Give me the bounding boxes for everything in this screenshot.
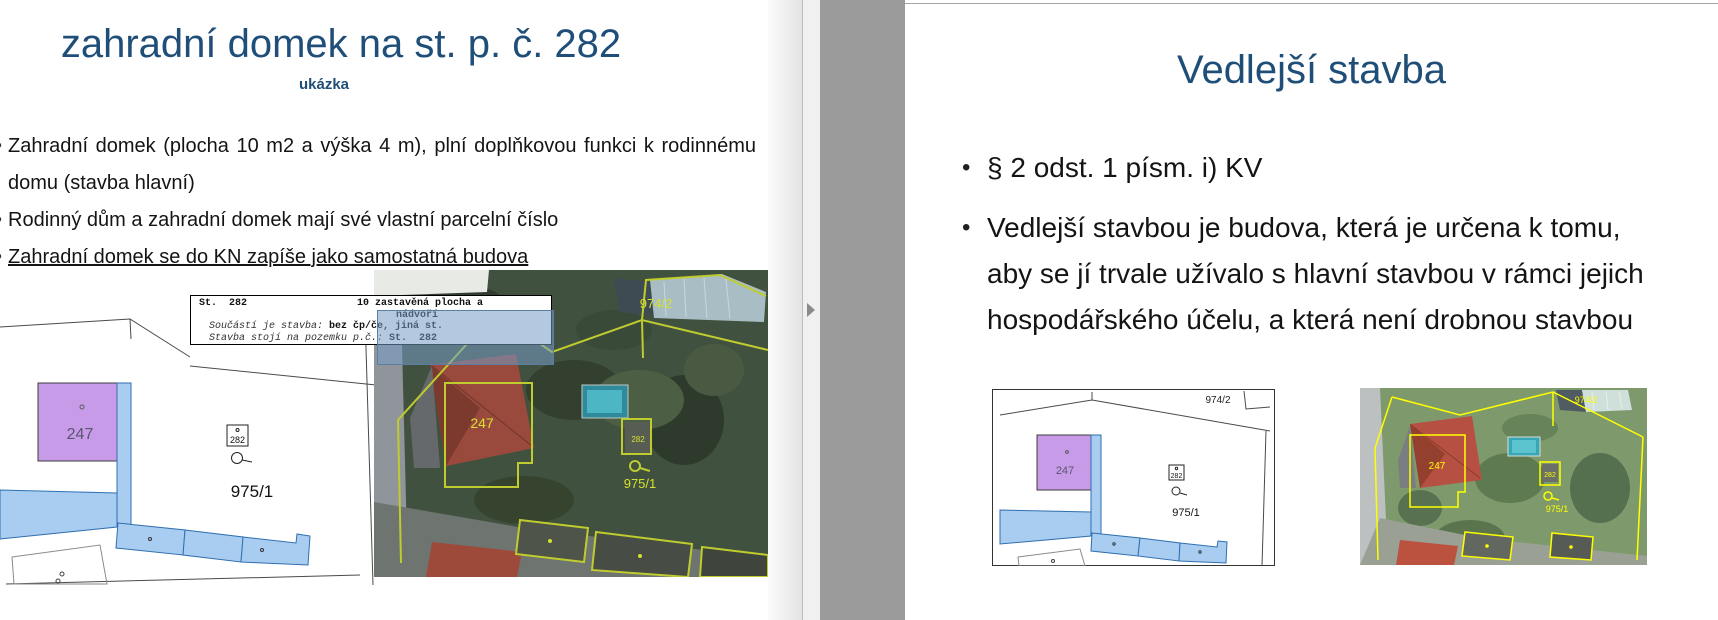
right-slide-bullet-list: § 2 odst. 1 písm. i) KV Vedlejší stavbou… [960, 145, 1660, 357]
bullet-item: Zahradní domek (plocha 10 m2 a výška 4 m… [8, 128, 756, 202]
aerial-building-282-label: 282 [1544, 472, 1556, 479]
aerial-parcel-247-label: 247 [470, 415, 494, 431]
right-slide: Vedlejší stavba § 2 odst. 1 písm. i) KV … [905, 0, 1718, 620]
map-parcel-247-label: 247 [67, 426, 94, 443]
aerial-parcel-974-label: 974/2 [1575, 395, 1598, 405]
map-parcel-247-label: 247 [1056, 465, 1074, 477]
bullet-item: Vedlejší stavbou je budova, která je urč… [960, 205, 1660, 343]
aerial-parcel-974-label: 974/2 [640, 296, 673, 311]
land-use: 10 zastavěná plocha a [357, 298, 483, 310]
map-parcel-975-label: 975/1 [1172, 507, 1200, 519]
slide-top-border [905, 3, 1718, 4]
map-parcel-974-label: 974/2 [1205, 395, 1230, 406]
screenshot-root: zahradní domek na st. p. č. 282 ukázka Z… [0, 0, 1718, 620]
aerial-parcel-975-label: 975/1 [624, 476, 657, 491]
parcel-number: St. 282 [191, 298, 357, 310]
map-building-282-label: 282 [1171, 473, 1183, 480]
expand-arrow-icon[interactable] [807, 303, 815, 317]
info-box-row-parcel: St. 282 10 zastavěná plocha a [191, 298, 551, 310]
pane-shadow [768, 0, 802, 620]
stands-on-label: Stavba stojí na pozemku p.č.: [209, 333, 389, 344]
selection-highlight[interactable] [377, 310, 554, 365]
aerial-parcel-975-label: 975/1 [1546, 504, 1569, 514]
cadastral-map-image-small[interactable]: 247 282 975/1 974/2 [992, 389, 1275, 566]
bullet-item: § 2 odst. 1 písm. i) KV [960, 145, 1660, 191]
aerial-photo-image-small[interactable]: 974/2 247 282 975/1 [1360, 388, 1647, 565]
aerial-parcel-247-label: 247 [1429, 461, 1446, 472]
building-label: Součástí je stavba: [209, 321, 329, 332]
aerial-building-282-label: 282 [631, 435, 645, 444]
left-slide: zahradní domek na st. p. č. 282 ukázka Z… [0, 0, 770, 620]
map-building-282-label: 282 [230, 435, 245, 445]
map-parcel-975-label: 975/1 [231, 482, 274, 501]
right-slide-title: Vedlejší stavba [905, 48, 1718, 93]
left-slide-subtitle: ukázka [0, 76, 648, 93]
left-slide-title: zahradní domek na st. p. č. 282 [0, 22, 682, 67]
bullet-item: Rodinný dům a zahradní domek mají své vl… [8, 202, 756, 239]
left-slide-bullet-list: Zahradní domek (plocha 10 m2 a výška 4 m… [8, 128, 756, 276]
window-gray-band [820, 0, 905, 620]
